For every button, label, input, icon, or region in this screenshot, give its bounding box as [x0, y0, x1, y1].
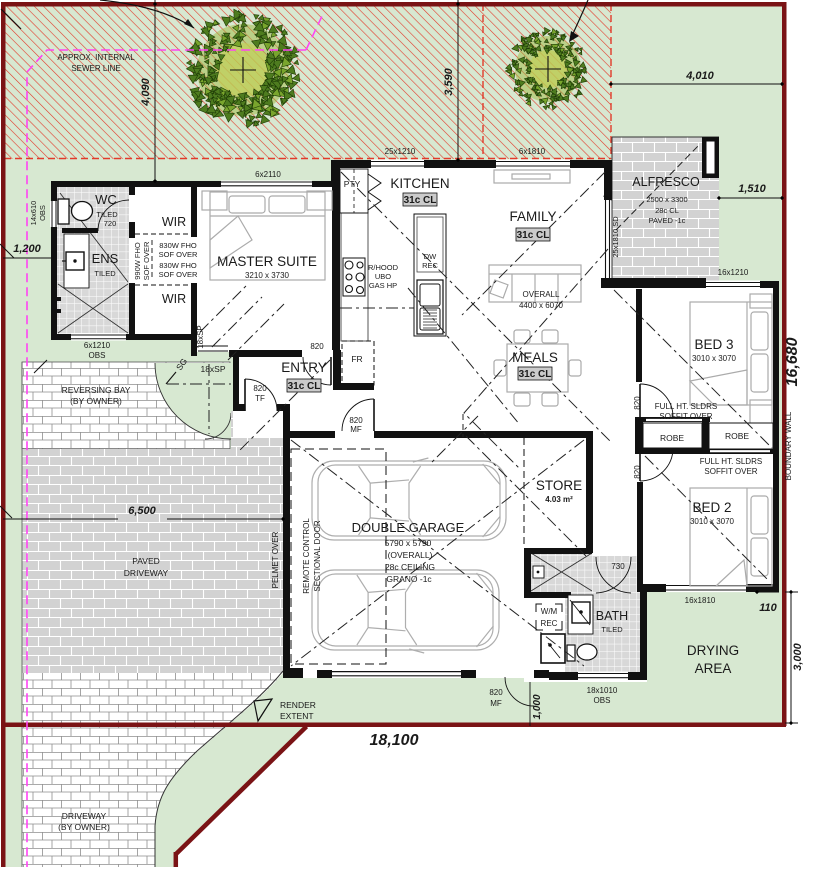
svg-text:3,000: 3,000 [792, 642, 804, 670]
svg-text:TILED: TILED [94, 269, 116, 278]
svg-text:GAS HP: GAS HP [369, 281, 397, 290]
svg-text:820: 820 [349, 416, 363, 425]
svg-text:BED 3: BED 3 [694, 337, 733, 352]
svg-text:DRIVEWAY: DRIVEWAY [124, 568, 169, 578]
svg-text:3210 x 3730: 3210 x 3730 [245, 271, 290, 280]
svg-text:31c CL: 31c CL [288, 381, 321, 392]
svg-text:SECTIONAL DOOR: SECTIONAL DOOR [313, 520, 322, 591]
svg-text:OVERALL: OVERALL [523, 290, 560, 299]
svg-text:31c CL: 31c CL [519, 369, 552, 380]
svg-text:720: 720 [104, 219, 117, 228]
svg-text:1,510: 1,510 [738, 183, 766, 195]
svg-text:6,500: 6,500 [128, 505, 156, 517]
svg-text:4,010: 4,010 [685, 70, 714, 82]
svg-text:REC: REC [541, 619, 558, 628]
svg-text:MASTER SUITE: MASTER SUITE [217, 254, 317, 269]
svg-text:PTY: PTY [344, 179, 361, 189]
svg-text:TF: TF [255, 394, 265, 403]
svg-text:WIR: WIR [162, 215, 186, 229]
svg-text:820: 820 [633, 465, 642, 479]
svg-text:REC: REC [422, 261, 438, 270]
svg-text:SOFFIT OVER: SOFFIT OVER [659, 412, 712, 421]
svg-text:ROBE: ROBE [725, 431, 749, 441]
svg-text:18x1010: 18x1010 [587, 686, 618, 695]
svg-text:BATH: BATH [596, 609, 628, 623]
svg-text:730: 730 [611, 562, 625, 571]
svg-text:FULL HT. SLDRS: FULL HT. SLDRS [655, 402, 717, 411]
svg-text:FR: FR [351, 354, 362, 364]
svg-text:PAVED: PAVED [132, 556, 160, 566]
svg-text:830W FHO: 830W FHO [159, 261, 197, 270]
svg-text:18,100: 18,100 [370, 732, 419, 749]
svg-text:SEWER LINE: SEWER LINE [71, 64, 120, 73]
svg-text:PAVED -1c: PAVED -1c [649, 216, 686, 225]
svg-text:6x1210: 6x1210 [84, 341, 111, 350]
svg-text:3010 x 3070: 3010 x 3070 [690, 517, 735, 526]
svg-text:WIR: WIR [162, 292, 186, 306]
svg-text:UBO: UBO [375, 272, 391, 281]
svg-text:KITCHEN: KITCHEN [390, 176, 449, 191]
svg-text:TILED: TILED [96, 210, 118, 219]
svg-text:18xSP: 18xSP [196, 325, 205, 349]
svg-text:MF: MF [490, 699, 502, 708]
svg-text:3010 x 3070: 3010 x 3070 [692, 354, 737, 363]
svg-text:5790 x 5790: 5790 x 5790 [385, 538, 432, 548]
svg-text:18xSP: 18xSP [200, 364, 225, 374]
svg-text:820: 820 [489, 688, 503, 697]
svg-text:16x1210: 16x1210 [718, 268, 749, 277]
svg-text:PELMET OVER: PELMET OVER [271, 531, 280, 588]
svg-text:820: 820 [633, 396, 642, 410]
svg-text:SOF OVER: SOF OVER [159, 250, 198, 259]
svg-text:830W FHO: 830W FHO [159, 241, 197, 250]
svg-text:SOF OVER: SOF OVER [142, 241, 151, 280]
svg-text:FULL HT. SLDRS: FULL HT. SLDRS [700, 457, 762, 466]
svg-text:DW: DW [424, 252, 437, 261]
svg-text:2500 x 3300: 2500 x 3300 [646, 195, 687, 204]
svg-text:ENTRY: ENTRY [281, 360, 327, 375]
svg-text:OBS: OBS [594, 696, 611, 705]
svg-text:28c CEILING: 28c CEILING [385, 562, 435, 572]
svg-text:BED 2: BED 2 [692, 500, 731, 515]
svg-text:16,680: 16,680 [784, 337, 801, 386]
svg-text:DRIVEWAY: DRIVEWAY [62, 811, 107, 821]
svg-text:SOF OVER: SOF OVER [159, 270, 198, 279]
svg-text:820: 820 [310, 342, 324, 351]
svg-text:4,090: 4,090 [140, 77, 152, 106]
svg-text:(BY OWNER): (BY OWNER) [58, 822, 110, 832]
svg-text:ENS: ENS [92, 251, 119, 266]
svg-text:REMOTE CONTROL: REMOTE CONTROL [302, 518, 311, 594]
svg-text:990W FHO: 990W FHO [133, 242, 142, 280]
svg-text:GRANO -1c: GRANO -1c [386, 574, 432, 584]
svg-text:16x1810: 16x1810 [685, 596, 716, 605]
svg-text:STORE: STORE [536, 478, 582, 493]
svg-text:25x1810 SD: 25x1810 SD [611, 216, 620, 258]
svg-text:SOFFIT OVER: SOFFIT OVER [704, 467, 757, 476]
svg-text:820: 820 [253, 384, 267, 393]
svg-text:110: 110 [759, 602, 777, 614]
svg-text:W/M: W/M [541, 607, 558, 616]
svg-text:REVERSING BAY: REVERSING BAY [62, 385, 131, 395]
svg-text:OBS: OBS [89, 351, 106, 360]
svg-text:R/HOOD: R/HOOD [368, 263, 399, 272]
svg-text:DOUBLE GARAGE: DOUBLE GARAGE [352, 520, 465, 535]
svg-text:(BY OWNER): (BY OWNER) [70, 396, 122, 406]
svg-text:ALFRESCO: ALFRESCO [632, 175, 700, 189]
svg-text:OBS: OBS [38, 205, 47, 221]
svg-text:FAMILY: FAMILY [509, 209, 556, 224]
svg-text:(OVERALL): (OVERALL) [388, 550, 433, 560]
svg-text:RENDER: RENDER [280, 700, 316, 710]
svg-text:25x1210: 25x1210 [385, 147, 416, 156]
svg-text:1,200: 1,200 [13, 243, 41, 255]
svg-text:31c CL: 31c CL [404, 195, 437, 206]
svg-text:DRYING: DRYING [687, 643, 739, 658]
svg-text:ROBE: ROBE [660, 433, 684, 443]
svg-text:6x2110: 6x2110 [255, 170, 281, 179]
svg-text:28c CL: 28c CL [655, 206, 679, 215]
svg-text:4.03 m²: 4.03 m² [545, 495, 573, 504]
svg-text:AREA: AREA [695, 661, 732, 676]
svg-text:MF: MF [350, 425, 362, 434]
svg-text:WC: WC [95, 192, 117, 207]
svg-text:1,000: 1,000 [532, 694, 543, 719]
svg-text:4400 x 6070: 4400 x 6070 [519, 301, 564, 310]
svg-text:14x610: 14x610 [29, 201, 38, 226]
svg-text:BOUNDARY WALL: BOUNDARY WALL [784, 411, 793, 480]
svg-text:3,590: 3,590 [443, 67, 455, 95]
svg-text:31c CL: 31c CL [517, 230, 550, 241]
svg-text:6x1810: 6x1810 [519, 147, 546, 156]
svg-text:MEALS: MEALS [512, 350, 558, 365]
svg-text:TILED: TILED [601, 625, 623, 634]
svg-text:APPROX. INTERNAL: APPROX. INTERNAL [57, 53, 135, 62]
svg-text:EXTENT: EXTENT [280, 711, 314, 721]
